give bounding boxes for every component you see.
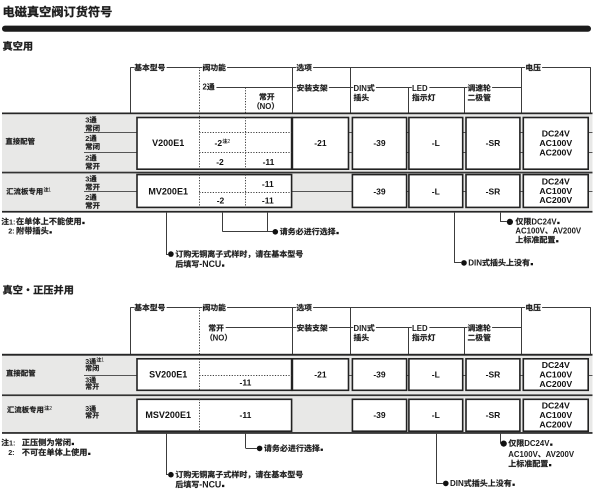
svg-text:LED: LED — [412, 84, 428, 93]
svg-text:AV200V: AV200V — [553, 226, 582, 235]
svg-text:-39: -39 — [373, 410, 386, 420]
svg-text:2: 2 — [85, 154, 89, 163]
svg-text:DIN: DIN — [354, 324, 368, 333]
svg-text:-L: -L — [432, 410, 440, 420]
svg-text:1:: 1: — [9, 217, 15, 226]
svg-text:NO: NO — [260, 102, 272, 111]
svg-text:1:: 1: — [9, 438, 15, 447]
svg-text:-SR: -SR — [486, 186, 501, 196]
svg-text:2:: 2: — [8, 227, 14, 236]
svg-text:SV200E1: SV200E1 — [149, 369, 187, 379]
svg-text:DIN: DIN — [450, 479, 464, 488]
svg-text:2: 2 — [85, 193, 89, 202]
svg-text:-L: -L — [432, 138, 440, 148]
svg-text:-L: -L — [432, 369, 440, 379]
svg-text:LED: LED — [412, 324, 428, 333]
svg-text:AV200V: AV200V — [546, 450, 575, 459]
svg-text:-NCU: -NCU — [199, 479, 221, 489]
svg-text:-SR: -SR — [486, 369, 501, 379]
svg-text:3: 3 — [85, 174, 89, 183]
svg-text:-11: -11 — [239, 378, 251, 388]
svg-text:2:: 2: — [8, 448, 14, 457]
svg-text:-2: -2 — [216, 157, 224, 167]
svg-text:-SR: -SR — [486, 410, 501, 420]
svg-text:-11: -11 — [239, 410, 251, 420]
svg-text:V200E1: V200E1 — [152, 138, 184, 148]
svg-text:DC24V: DC24V — [524, 439, 550, 448]
svg-text:AC100V: AC100V — [508, 450, 538, 459]
svg-text:-21: -21 — [314, 138, 327, 148]
svg-text:NO: NO — [213, 333, 225, 342]
svg-text:2: 2 — [85, 134, 89, 143]
svg-text:-39: -39 — [373, 186, 386, 196]
svg-text:DC24V: DC24V — [531, 217, 557, 226]
svg-text:-11: -11 — [262, 179, 274, 189]
svg-text:AC200V: AC200V — [539, 419, 572, 429]
svg-text:2: 2 — [203, 83, 208, 92]
svg-text:1: 1 — [101, 358, 104, 364]
svg-text:-11: -11 — [262, 195, 274, 205]
svg-text:DIN: DIN — [468, 259, 482, 268]
svg-text:DIN: DIN — [354, 84, 368, 93]
svg-text:-21: -21 — [314, 369, 327, 379]
svg-text:MSV200E1: MSV200E1 — [145, 410, 191, 420]
svg-text:-L: -L — [432, 186, 440, 196]
svg-text:AC200V: AC200V — [539, 379, 572, 389]
svg-text:1: 1 — [48, 188, 51, 194]
svg-text:AC200V: AC200V — [539, 195, 572, 205]
svg-text:-SR: -SR — [486, 138, 501, 148]
svg-text:MV200E1: MV200E1 — [148, 186, 188, 196]
svg-text:2: 2 — [49, 406, 52, 412]
svg-text:-39: -39 — [373, 138, 386, 148]
svg-text:AC100V: AC100V — [515, 226, 545, 235]
svg-text:-39: -39 — [373, 369, 386, 379]
svg-text:-2: -2 — [215, 138, 223, 148]
svg-text:-2: -2 — [217, 195, 225, 205]
svg-text:-NCU: -NCU — [199, 259, 221, 269]
svg-text:AC200V: AC200V — [539, 148, 572, 158]
svg-text:2: 2 — [227, 139, 230, 145]
svg-text:3: 3 — [85, 116, 89, 125]
svg-text:-11: -11 — [263, 157, 275, 167]
